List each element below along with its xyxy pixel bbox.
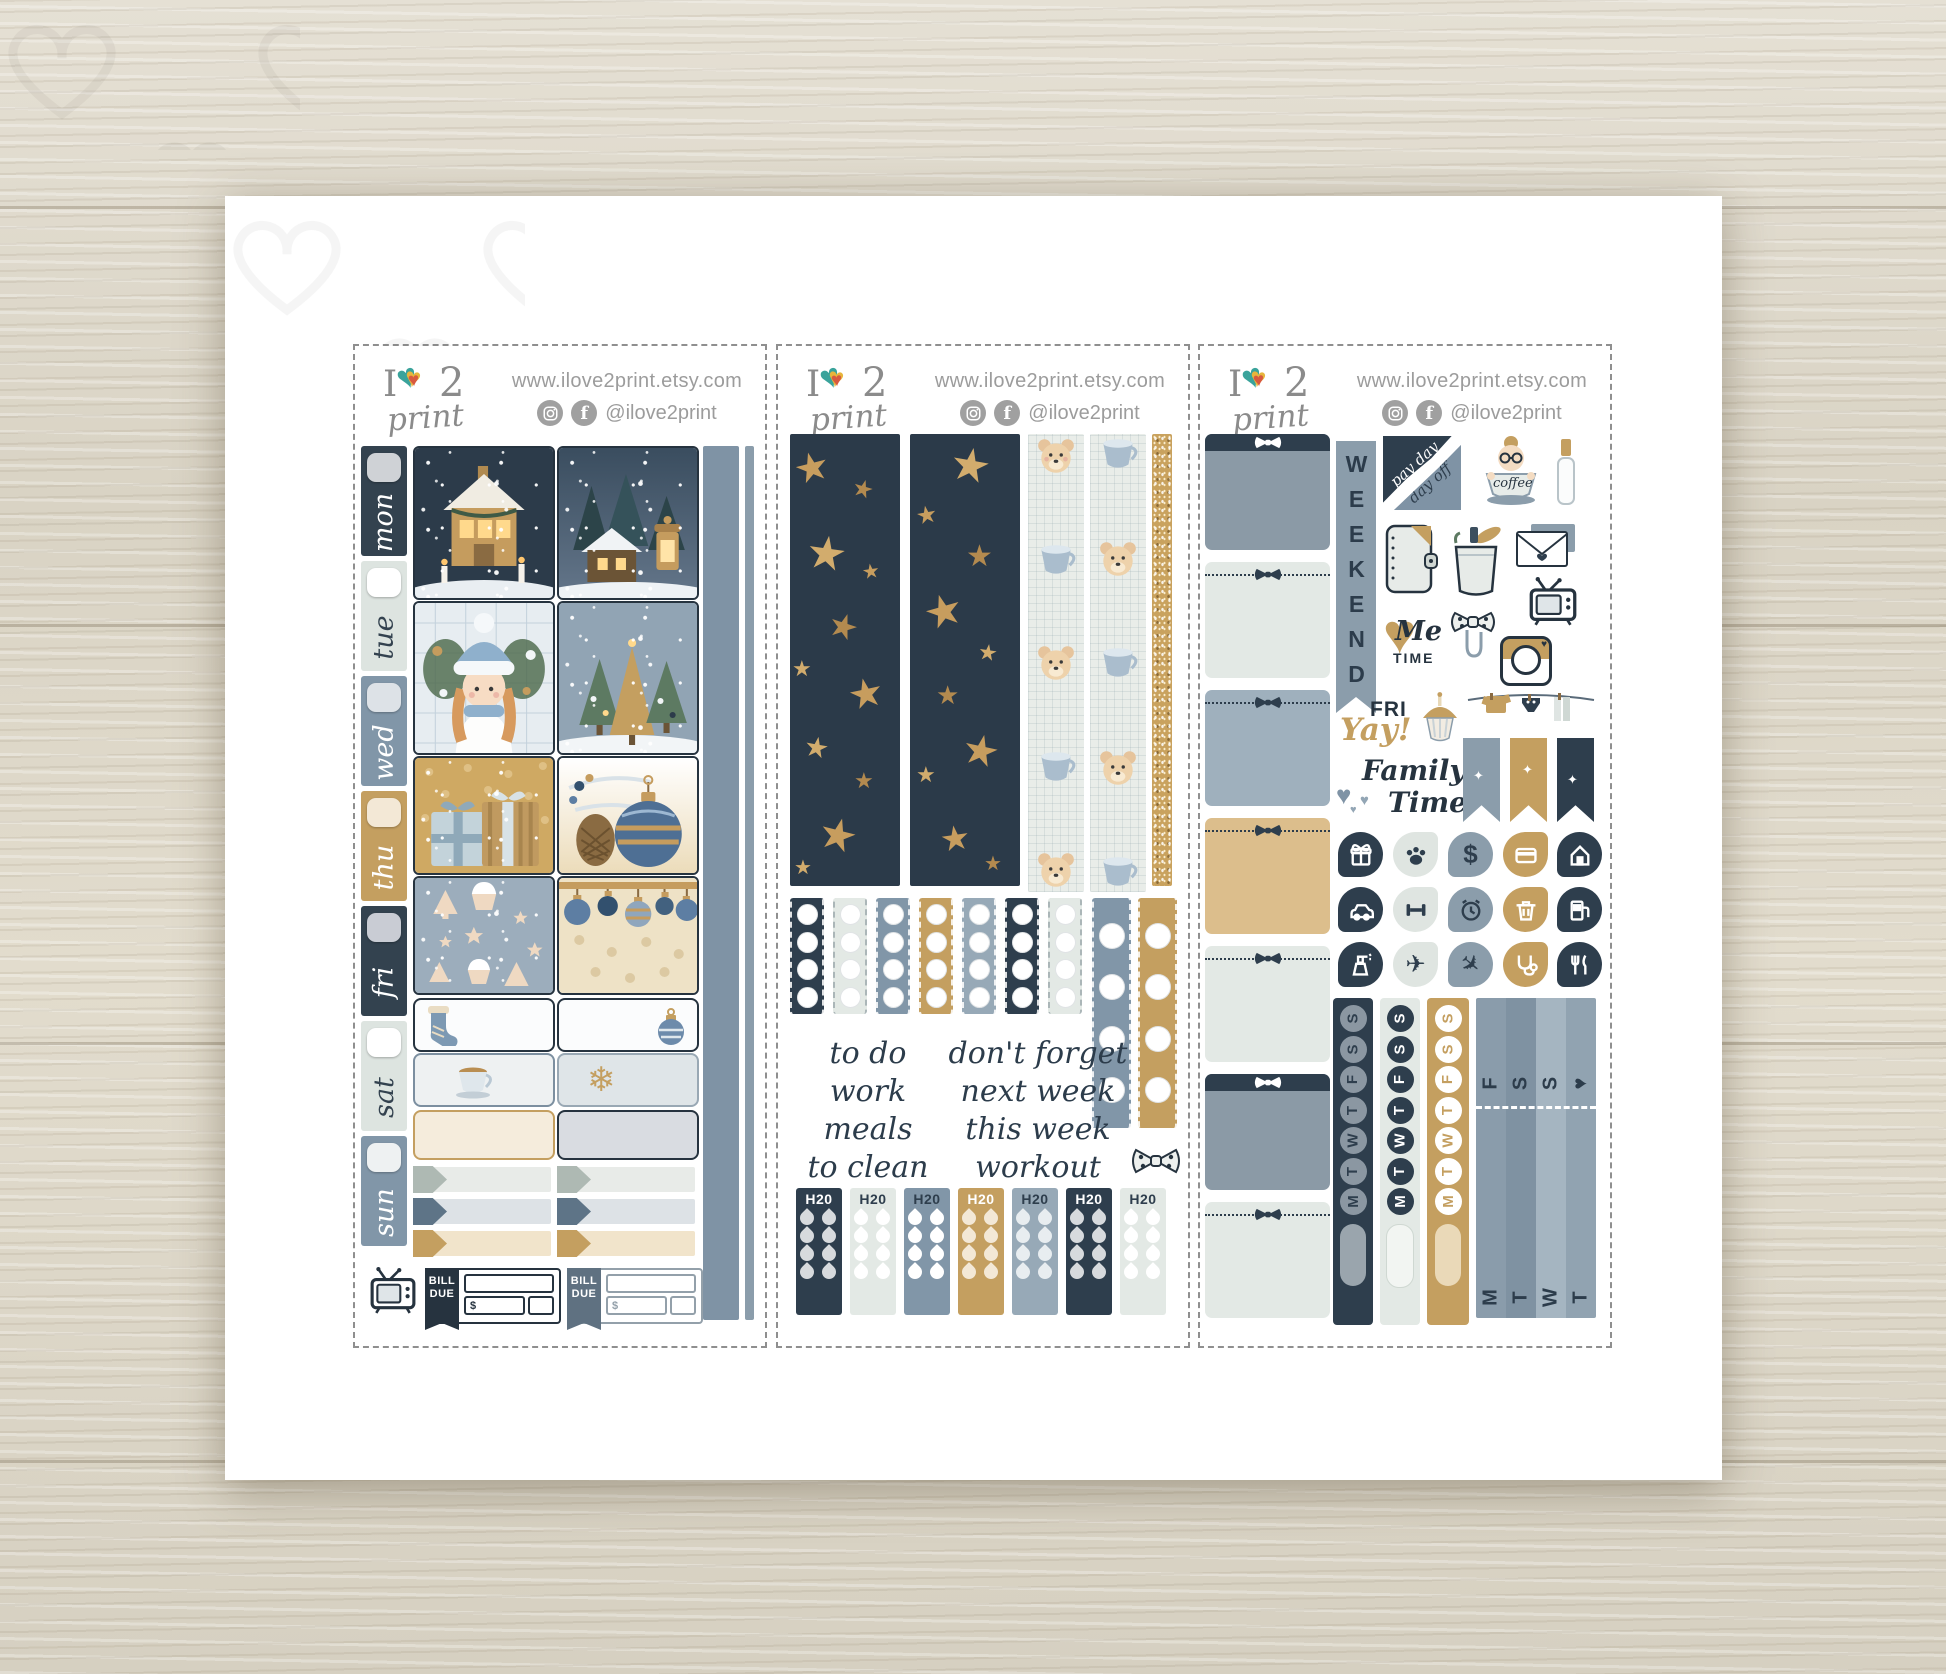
bow-icon xyxy=(1251,951,1285,966)
facebook-icon: f xyxy=(994,400,1020,426)
bow-box-gold xyxy=(1205,818,1330,934)
bow-paperclip-sticker xyxy=(1447,610,1499,662)
heart-watermark-wood xyxy=(0,0,300,150)
day-label: fri xyxy=(368,966,399,998)
week-checklist-strip-navy: S S F T W T M xyxy=(1333,998,1373,1325)
washi-strip-narrow xyxy=(745,446,754,1320)
pennant-light-1 xyxy=(413,1166,551,1193)
h2o-tracker: H20 xyxy=(1120,1188,1166,1315)
coffee-label: coffee xyxy=(1493,476,1533,491)
car-icon xyxy=(1338,887,1383,932)
bill-check-field xyxy=(528,1296,554,1315)
teddy-bear-icon xyxy=(1097,540,1139,578)
fullbox-gifts xyxy=(413,756,555,875)
printable-page: I ♥ ♥ ♥ 2 print www.ilove2print.etsy.com… xyxy=(225,196,1722,1480)
date-cover-washi: F S S ♥ M T W T xyxy=(1476,998,1596,1318)
bow-box-navy-top xyxy=(1205,434,1330,550)
instagram-icon xyxy=(960,400,986,426)
shop-url: www.ilove2print.etsy.com xyxy=(918,370,1182,393)
family-time-sticker: Family Time ♥ ♥ ♥ xyxy=(1336,754,1448,826)
coffee-cup-icon xyxy=(453,1060,497,1100)
label-coffee xyxy=(413,1053,555,1107)
sticker-sheet-weekly: I ♥ ♥ ♥ 2 print www.ilove2print.etsy.com… xyxy=(353,344,767,1348)
day-label: sat xyxy=(369,1077,400,1118)
logo-heart-icon: ♥ ♥ ♥ xyxy=(1242,360,1278,396)
dot-strip-tall xyxy=(1138,898,1177,1128)
phrase-to-do: to do xyxy=(778,1036,958,1071)
day-label: sun xyxy=(369,1188,400,1237)
planner-icon xyxy=(1383,522,1439,596)
logo-heart-icon: ♥ ♥ ♥ xyxy=(820,360,856,396)
day-strip-tue: tue xyxy=(361,561,407,671)
h2o-tracker: H20 xyxy=(850,1188,896,1315)
day-strip-sat: sat xyxy=(361,1021,407,1131)
bow-box-mint xyxy=(1205,562,1330,678)
social-handle: @ilove2print xyxy=(1028,402,1139,425)
dot-strip xyxy=(876,898,910,1014)
teacup-icon xyxy=(1097,437,1139,471)
grocery-bag-icon xyxy=(1448,521,1504,596)
credit-card-icon xyxy=(1503,832,1548,877)
social-row: f @ilove2print xyxy=(1340,400,1604,426)
washi-teddy-bears xyxy=(1028,434,1084,892)
shop-url: www.ilove2print.etsy.com xyxy=(1340,370,1604,393)
airplane-icon: ✈ xyxy=(1393,942,1438,987)
day-checkbox xyxy=(367,1028,401,1057)
fullbox-baubles-damask xyxy=(557,876,699,995)
heart-watermark-paper xyxy=(225,196,525,346)
weekend-banner: WEEKEND xyxy=(1336,441,1376,713)
day-checkbox xyxy=(367,1143,401,1172)
facebook-icon: f xyxy=(1416,400,1442,426)
fri-yay-sticker: FRI Yay! xyxy=(1340,698,1420,750)
day-strip-wed: wed xyxy=(361,676,407,786)
stethoscope-icon xyxy=(1503,942,1548,987)
day-strip-mon: mon xyxy=(361,446,407,556)
gift-icon xyxy=(1338,832,1383,877)
fullbox-ornament-pinecone xyxy=(557,756,699,875)
day-label: thu xyxy=(368,844,399,890)
phrase-this-week: this week xyxy=(938,1112,1138,1147)
social-row: f @ilove2print xyxy=(495,400,759,426)
bow-icon xyxy=(1251,1207,1285,1222)
bow-box-mint xyxy=(1205,946,1330,1062)
dot-strip xyxy=(1048,898,1082,1014)
day-checkbox xyxy=(367,798,401,827)
day-strip-fri: fri xyxy=(361,906,407,1016)
photo-background-wood: I ♥ ♥ ♥ 2 print www.ilove2print.etsy.com… xyxy=(0,0,1946,1674)
label-navy xyxy=(557,1110,699,1160)
day-checkbox xyxy=(367,913,401,942)
dot-strip xyxy=(833,898,867,1014)
fullbox-christmas-trees xyxy=(557,601,699,755)
ilove2print-logo: I ♥ ♥ ♥ 2 print xyxy=(1226,358,1342,440)
stocking-icon xyxy=(421,1004,461,1046)
dot-strip xyxy=(962,898,996,1014)
bow-box-blue xyxy=(1205,690,1330,806)
h2o-tracker: H20 xyxy=(796,1188,842,1315)
bow-box-mint xyxy=(1205,1202,1330,1318)
phrase-to-clean: to clean xyxy=(778,1150,958,1185)
cupcake-icon xyxy=(1418,692,1462,742)
me-time-sticker: ♥ Me TIME xyxy=(1383,610,1441,674)
bow-icon xyxy=(1251,567,1285,582)
gas-pump-icon xyxy=(1557,887,1602,932)
social-handle: @ilove2print xyxy=(1450,402,1561,425)
phrase-meals: meals xyxy=(778,1112,958,1147)
fullbox-cookie-pattern xyxy=(413,876,555,995)
sticker-sheet-icons: I ♥ ♥ ♥ 2 print www.ilove2print.etsy.com… xyxy=(1198,344,1612,1348)
label-gold xyxy=(413,1110,555,1160)
bill-banner: BILLDUE xyxy=(425,1268,459,1330)
day-checkbox xyxy=(367,568,401,597)
bow-icon xyxy=(1251,1075,1285,1090)
bow-icon xyxy=(1251,435,1285,450)
social-handle: @ilove2print xyxy=(605,402,716,425)
dot-strip xyxy=(1005,898,1039,1014)
bill-amount-field: $ xyxy=(464,1296,525,1315)
phrase-dont-forget: don't forget xyxy=(938,1036,1138,1071)
sparkle-flag-blue: ✦ xyxy=(1463,738,1500,822)
sparkle-flag-navy: ✦ xyxy=(1557,738,1594,822)
corner-stickers: pay day day off xyxy=(1383,436,1461,510)
pennant-blue-2 xyxy=(557,1198,695,1225)
washi-strip-wide xyxy=(703,446,739,1320)
washi-dashed-line xyxy=(1476,1106,1596,1109)
pennant-gold-2 xyxy=(557,1230,695,1257)
bill-due-sticker-gray: BILLDUE $ xyxy=(567,1268,703,1324)
fullbox-winter-house xyxy=(413,446,555,600)
teacup-icon xyxy=(1035,543,1077,577)
facebook-icon: f xyxy=(571,400,597,426)
ilove2print-logo: I ♥ ♥ ♥ 2 print xyxy=(804,358,920,440)
utensils-icon xyxy=(1557,942,1602,987)
fullbox-winter-village xyxy=(557,446,699,600)
day-checkbox xyxy=(367,453,401,482)
bill-amount-field: $ xyxy=(606,1296,667,1315)
bow-icon xyxy=(1251,823,1285,838)
day-label: wed xyxy=(369,724,400,780)
dollar-icon: $ xyxy=(1448,832,1493,877)
spray-bottle-icon xyxy=(1338,942,1383,987)
week-checklist-strip-mint: S S F T W T M xyxy=(1380,998,1420,1325)
sticker-sheet-washi: I ♥ ♥ ♥ 2 print www.ilove2print.etsy.com… xyxy=(776,344,1190,1348)
washi-gold-stars-1: ★ ★ ★ ★ ★ ★ ★ ★ ★ ★ ★ xyxy=(790,434,900,886)
logo-heart-icon: ♥ ♥ ♥ xyxy=(397,360,433,396)
mail-sticker xyxy=(1515,522,1577,570)
tv-icon xyxy=(1528,574,1578,630)
bill-due-sticker: BILLDUE $ xyxy=(425,1268,561,1324)
dot-strip xyxy=(919,898,953,1014)
bow-box-navy-top xyxy=(1205,1074,1330,1190)
instagram-icon xyxy=(1382,400,1408,426)
h2o-tracker: H20 xyxy=(904,1188,950,1315)
fullbox-winter-girl xyxy=(413,601,555,755)
logo-print: print xyxy=(386,397,465,438)
day-label: tue xyxy=(369,615,400,659)
bill-field xyxy=(464,1274,554,1293)
airplane-landing-icon: ✈ xyxy=(1448,942,1493,987)
h2o-tracker: H20 xyxy=(958,1188,1004,1315)
teddy-bear-icon xyxy=(1035,437,1077,475)
pennant-light-2 xyxy=(557,1166,695,1193)
label-snowflake: ❄ xyxy=(557,1053,699,1107)
ilove2print-logo: I ♥ ♥ ♥ 2 print xyxy=(381,358,497,440)
bill-banner: BILLDUE xyxy=(567,1268,601,1330)
tv-icon xyxy=(369,1266,417,1316)
social-row: f @ilove2print xyxy=(918,400,1182,426)
label-stocking xyxy=(413,998,555,1052)
pennant-gold-1 xyxy=(413,1230,551,1257)
washi-gold-stars-2: ★ ★ ★ ★ ★ ★ ★ ★ ★ ★ xyxy=(910,434,1020,886)
coffee-lady-sticker: coffee xyxy=(1477,434,1545,508)
bill-field xyxy=(606,1274,696,1293)
alarm-clock-icon xyxy=(1448,887,1493,932)
washi-gold-glitter xyxy=(1152,434,1172,886)
label-ornament xyxy=(557,998,699,1052)
nail-polish-icon xyxy=(1556,437,1576,507)
clothesline-icon xyxy=(1466,688,1596,734)
phrase-next-week: next week xyxy=(938,1074,1138,1109)
h2o-tracker: H20 xyxy=(1066,1188,1112,1315)
dumbbell-icon xyxy=(1393,887,1438,932)
day-strip-thu: thu xyxy=(361,791,407,901)
bill-check-field xyxy=(670,1296,696,1315)
washi-teacups xyxy=(1090,434,1146,892)
paw-icon xyxy=(1393,832,1438,877)
polka-bow-icon xyxy=(1130,1146,1182,1176)
shop-url: www.ilove2print.etsy.com xyxy=(495,370,759,393)
week-checklist-strip-gold: S S F T W T M xyxy=(1427,998,1469,1325)
trash-icon xyxy=(1503,887,1548,932)
camera-icon: ♥ xyxy=(1500,636,1552,686)
day-strip-sun: sun xyxy=(361,1136,407,1246)
pennant-blue-1 xyxy=(413,1198,551,1225)
phrase-work: work xyxy=(778,1074,958,1109)
snowflake-icon: ❄ xyxy=(587,1060,616,1100)
dot-strip xyxy=(790,898,824,1014)
bow-icon xyxy=(1251,695,1285,710)
phrase-workout: workout xyxy=(938,1150,1138,1185)
ornament-icon xyxy=(653,1004,689,1046)
house-icon xyxy=(1557,832,1602,877)
h2o-tracker: H20 xyxy=(1012,1188,1058,1315)
day-label: mon xyxy=(369,492,400,551)
day-checkbox xyxy=(367,683,401,712)
sparkle-flag-gold: ✦ xyxy=(1510,738,1547,822)
instagram-icon xyxy=(537,400,563,426)
